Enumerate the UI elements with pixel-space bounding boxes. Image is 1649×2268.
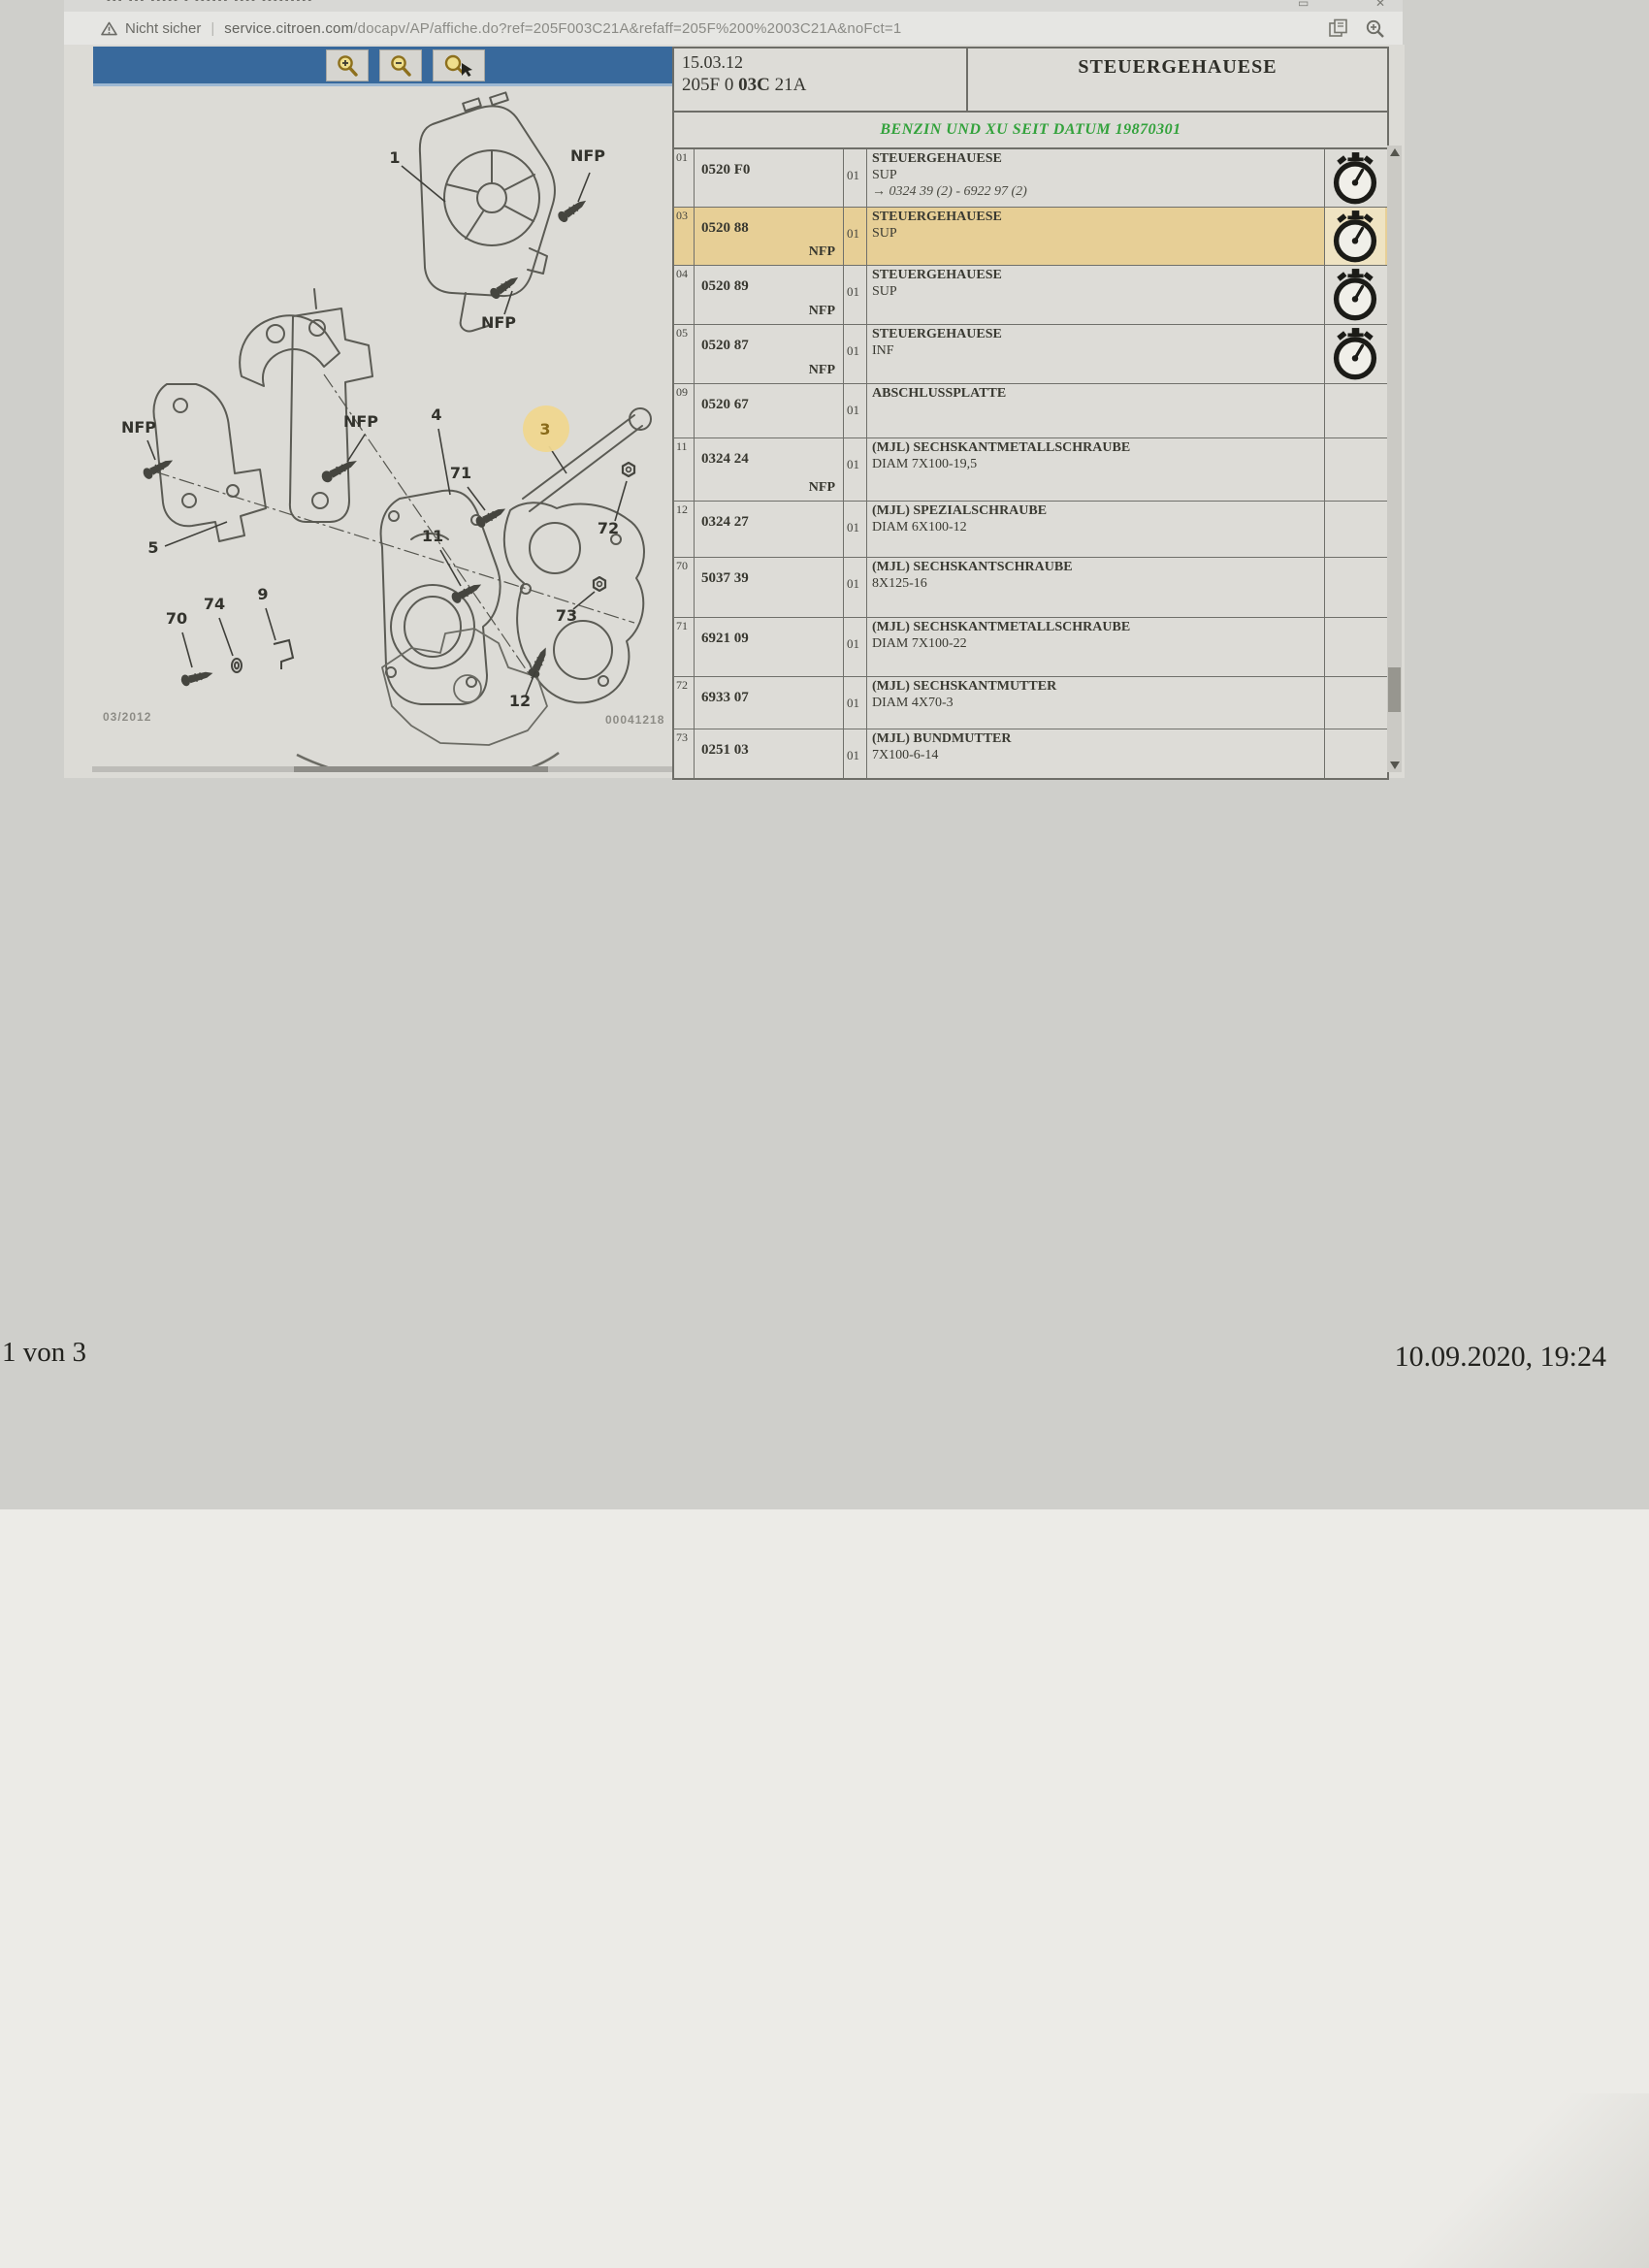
address-separator: | bbox=[210, 20, 214, 37]
part-description: STEUERGEHAUESESUP bbox=[867, 208, 1325, 265]
part-description: (MJL) SECHSKANTMUTTERDIAM 4X70-3 bbox=[867, 677, 1325, 729]
part-index: 73 bbox=[674, 729, 695, 778]
part-reference: 5037 39 bbox=[701, 570, 749, 587]
part-description: (MJL) BUNDMUTTER7X100-6-14 bbox=[867, 729, 1325, 778]
part-callout-label[interactable]: 73 bbox=[556, 606, 577, 625]
table-row[interactable]: 040520 89NFP01STEUERGEHAUESESUP bbox=[674, 266, 1387, 325]
description-line: (MJL) BUNDMUTTER bbox=[872, 730, 1324, 747]
table-row[interactable]: 030520 88NFP01STEUERGEHAUESESUP bbox=[674, 208, 1387, 266]
part-quantity: 01 bbox=[844, 266, 867, 324]
part-callout-label[interactable]: 9 bbox=[257, 585, 268, 603]
timer-cell bbox=[1325, 729, 1385, 778]
table-row[interactable]: 716921 0901(MJL) SECHSKANTMETALLSCHRAUBE… bbox=[674, 618, 1387, 677]
part-quantity: 01 bbox=[844, 384, 867, 437]
description-line: SUP bbox=[872, 283, 1324, 300]
part-callout-label[interactable]: NFP bbox=[570, 146, 605, 165]
part-callout-label[interactable]: NFP bbox=[121, 418, 156, 437]
description-line: DIAM 4X70-3 bbox=[872, 695, 1324, 711]
timer-cell bbox=[1325, 149, 1385, 207]
scroll-up-arrow-icon[interactable] bbox=[1390, 148, 1400, 156]
part-callout-label[interactable]: 71 bbox=[450, 464, 471, 482]
description-line: DIAM 6X100-12 bbox=[872, 519, 1324, 535]
zoom-out-button[interactable] bbox=[379, 49, 422, 81]
description-line: 7X100-6-14 bbox=[872, 747, 1324, 763]
magnifier-arrow-icon bbox=[442, 53, 475, 79]
part-reference: 6921 09 bbox=[701, 631, 749, 647]
part-reference-cell[interactable]: 0520 F0 bbox=[695, 149, 844, 207]
part-callout-label[interactable]: 3 bbox=[539, 420, 550, 438]
part-reference: 0520 87 bbox=[701, 338, 749, 354]
stopwatch-icon[interactable] bbox=[1331, 210, 1379, 264]
timer-cell bbox=[1325, 266, 1385, 324]
description-line: SUP bbox=[872, 225, 1324, 242]
description-line: SUP bbox=[872, 167, 1324, 183]
part-callout-label[interactable]: 72 bbox=[598, 519, 619, 537]
part-callout-label[interactable]: 1 bbox=[389, 148, 400, 167]
part-index: 70 bbox=[674, 558, 695, 617]
timer-cell bbox=[1325, 558, 1385, 617]
blank-paper-area bbox=[0, 1509, 1649, 2268]
part-description: STEUERGEHAUESEINF bbox=[867, 325, 1325, 383]
part-reference-cell[interactable]: 0324 24NFP bbox=[695, 438, 844, 501]
description-line: (MJL) SECHSKANTMUTTER bbox=[872, 678, 1324, 695]
part-reference: 0520 88 bbox=[701, 220, 749, 237]
scroll-down-arrow-icon[interactable] bbox=[1390, 761, 1400, 769]
table-header: 15.03.12 205F 0 03C 21A STEUERGEHAUESE bbox=[674, 49, 1387, 113]
part-description: ABSCHLUSSPLATTE bbox=[867, 384, 1325, 437]
part-reference: 0520 89 bbox=[701, 278, 749, 295]
table-row[interactable]: 120324 2701(MJL) SPEZIALSCHRAUBEDIAM 6X1… bbox=[674, 502, 1387, 558]
part-index: 71 bbox=[674, 618, 695, 676]
description-line: STEUERGEHAUESE bbox=[872, 326, 1324, 342]
description-line: → 0324 39 (2) - 6922 97 (2) bbox=[872, 183, 1324, 200]
part-callout-label[interactable]: 70 bbox=[166, 609, 187, 628]
part-reference-cell[interactable]: 0324 27 bbox=[695, 502, 844, 557]
table-row[interactable]: 705037 3901(MJL) SECHSKANTSCHRAUBE8X125-… bbox=[674, 558, 1387, 618]
part-description: STEUERGEHAUESESUP→ 0324 39 (2) - 6922 97… bbox=[867, 149, 1325, 207]
part-description: STEUERGEHAUESESUP bbox=[867, 266, 1325, 324]
parts-table: 15.03.12 205F 0 03C 21A STEUERGEHAUESE B… bbox=[672, 47, 1389, 780]
description-line: 8X125-16 bbox=[872, 575, 1324, 592]
browser-tab-strip: ▪▪▪ ▪▪▪ ▪▪▪▪▪ ▪ ▪▪▪▪▪▪ ▪▪▪▪ ▪▪▪▪▪▪▪▪▪ ▭ … bbox=[64, 0, 1403, 12]
nfp-flag: NFP bbox=[809, 244, 835, 260]
part-quantity: 01 bbox=[844, 149, 867, 207]
part-reference: 0520 67 bbox=[701, 397, 749, 413]
part-callout-label[interactable]: 12 bbox=[509, 692, 531, 710]
engine-variant-subtitle: BENZIN UND XU SEIT DATUM 19870301 bbox=[674, 113, 1387, 149]
part-reference-cell[interactable]: 0251 03 bbox=[695, 729, 844, 778]
zoom-select-button[interactable] bbox=[433, 49, 485, 81]
part-callout-label[interactable]: 4 bbox=[431, 405, 441, 424]
zoom-icon[interactable] bbox=[1365, 18, 1385, 39]
description-line: STEUERGEHAUESE bbox=[872, 150, 1324, 167]
part-reference-cell[interactable]: 0520 88NFP bbox=[695, 208, 844, 265]
maximize-icon[interactable]: ▭ bbox=[1298, 0, 1309, 10]
part-reference-cell[interactable]: 0520 87NFP bbox=[695, 325, 844, 383]
description-line: (MJL) SECHSKANTMETALLSCHRAUBE bbox=[872, 439, 1324, 456]
timer-cell bbox=[1325, 208, 1385, 265]
timer-cell bbox=[1325, 677, 1385, 729]
description-line: (MJL) SECHSKANTMETALLSCHRAUBE bbox=[872, 619, 1324, 635]
part-index: 04 bbox=[674, 266, 695, 324]
part-index: 03 bbox=[674, 208, 695, 265]
print-timestamp: 10.09.2020, 19:24 bbox=[1395, 1341, 1606, 1374]
part-quantity: 01 bbox=[844, 618, 867, 676]
table-row[interactable]: 050520 87NFP01STEUERGEHAUESEINF bbox=[674, 325, 1387, 384]
part-quantity: 01 bbox=[844, 325, 867, 383]
catalog-toolbar bbox=[93, 47, 673, 86]
horizontal-scrollbar[interactable] bbox=[92, 766, 672, 772]
description-line: INF bbox=[872, 342, 1324, 359]
part-index: 09 bbox=[674, 384, 695, 437]
table-row[interactable]: 010520 F001STEUERGEHAUESESUP→ 0324 39 (2… bbox=[674, 149, 1387, 208]
page-number: 1 von 3 bbox=[2, 1337, 86, 1369]
part-reference-cell[interactable]: 6921 09 bbox=[695, 618, 844, 676]
url-text[interactable]: service.citroen.com/docapv/AP/affiche.do… bbox=[224, 20, 901, 37]
part-index: 01 bbox=[674, 149, 695, 207]
part-callout-label[interactable]: 74 bbox=[204, 595, 225, 613]
part-reference: 0251 03 bbox=[701, 742, 749, 759]
table-row[interactable]: 110324 24NFP01(MJL) SECHSKANTMETALLSCHRA… bbox=[674, 438, 1387, 502]
stopwatch-icon[interactable] bbox=[1331, 268, 1379, 322]
parts-diagram: 1NFPNFPNFPNFP437111572737074912 bbox=[91, 83, 673, 768]
part-callout-label[interactable]: 11 bbox=[422, 527, 443, 545]
part-quantity: 01 bbox=[844, 502, 867, 557]
timer-cell bbox=[1325, 618, 1385, 676]
part-quantity: 01 bbox=[844, 208, 867, 265]
description-line: DIAM 7X100-22 bbox=[872, 635, 1324, 652]
horizontal-scroll-thumb[interactable] bbox=[294, 766, 548, 772]
timer-cell bbox=[1325, 502, 1385, 557]
nfp-flag: NFP bbox=[809, 304, 835, 319]
vertical-scrollbar[interactable] bbox=[1387, 146, 1402, 772]
catalog-reference: 205F 0 03C 21A bbox=[682, 75, 966, 96]
part-index: 12 bbox=[674, 502, 695, 557]
part-quantity: 01 bbox=[844, 558, 867, 617]
part-index: 72 bbox=[674, 677, 695, 729]
description-line: (MJL) SPEZIALSCHRAUBE bbox=[872, 502, 1324, 519]
zoom-in-button[interactable] bbox=[326, 49, 369, 81]
warning-triangle-icon bbox=[101, 21, 117, 36]
part-description: (MJL) SECHSKANTSCHRAUBE8X125-16 bbox=[867, 558, 1325, 617]
timer-cell bbox=[1325, 325, 1385, 383]
part-index: 11 bbox=[674, 438, 695, 501]
browser-viewport: 1NFPNFPNFPNFP437111572737074912 03/2012 … bbox=[64, 45, 1405, 778]
timer-cell bbox=[1325, 438, 1385, 501]
magnifier-plus-icon bbox=[335, 54, 360, 78]
description-line: DIAM 7X100-19,5 bbox=[872, 456, 1324, 472]
catalog-date: 15.03.12 bbox=[682, 52, 966, 73]
description-line: STEUERGEHAUESE bbox=[872, 209, 1324, 225]
description-line: STEUERGEHAUESE bbox=[872, 267, 1324, 283]
part-callout-label[interactable]: NFP bbox=[343, 412, 378, 431]
part-reference-cell[interactable]: 0520 67 bbox=[695, 384, 844, 437]
diagram-plate-number: 00041218 bbox=[605, 713, 664, 727]
address-bar[interactable]: Nicht sicher | service.citroen.com/docap… bbox=[64, 12, 1403, 46]
table-rows: 010520 F001STEUERGEHAUESESUP→ 0324 39 (2… bbox=[674, 149, 1387, 778]
page-title: STEUERGEHAUESE bbox=[968, 49, 1387, 111]
timer-cell bbox=[1325, 384, 1385, 437]
part-quantity: 01 bbox=[844, 438, 867, 501]
part-quantity: 01 bbox=[844, 729, 867, 778]
vertical-scroll-thumb[interactable] bbox=[1388, 667, 1401, 712]
pages-icon[interactable] bbox=[1328, 18, 1349, 38]
description-line: (MJL) SECHSKANTSCHRAUBE bbox=[872, 559, 1324, 575]
description-line: ABSCHLUSSPLATTE bbox=[872, 385, 1324, 402]
part-reference-cell[interactable]: 5037 39 bbox=[695, 558, 844, 617]
part-reference: 0520 F0 bbox=[701, 162, 750, 178]
part-callout-label[interactable]: 5 bbox=[147, 538, 158, 557]
magnifier-minus-icon bbox=[388, 54, 413, 78]
stopwatch-icon[interactable] bbox=[1331, 151, 1379, 206]
part-reference: 6933 07 bbox=[701, 690, 749, 706]
clipped-tab-text: ▪▪▪ ▪▪▪ ▪▪▪▪▪ ▪ ▪▪▪▪▪▪ ▪▪▪▪ ▪▪▪▪▪▪▪▪▪ bbox=[107, 0, 313, 6]
table-row[interactable]: 730251 0301(MJL) BUNDMUTTER7X100-6-14 bbox=[674, 729, 1387, 778]
part-quantity: 01 bbox=[844, 677, 867, 729]
table-row[interactable]: 090520 6701ABSCHLUSSPLATTE bbox=[674, 384, 1387, 438]
diagram-date-code: 03/2012 bbox=[103, 710, 151, 724]
part-reference: 0324 24 bbox=[701, 451, 749, 468]
stopwatch-icon[interactable] bbox=[1331, 327, 1379, 381]
nfp-flag: NFP bbox=[809, 480, 835, 496]
close-icon[interactable]: ✕ bbox=[1375, 0, 1385, 10]
security-warning-label: Nicht sicher bbox=[125, 20, 201, 37]
part-description: (MJL) SECHSKANTMETALLSCHRAUBEDIAM 7X100-… bbox=[867, 438, 1325, 501]
part-reference-cell[interactable]: 0520 89NFP bbox=[695, 266, 844, 324]
part-description: (MJL) SPEZIALSCHRAUBEDIAM 6X100-12 bbox=[867, 502, 1325, 557]
part-reference-cell[interactable]: 6933 07 bbox=[695, 677, 844, 729]
part-index: 05 bbox=[674, 325, 695, 383]
nfp-flag: NFP bbox=[809, 363, 835, 378]
part-description: (MJL) SECHSKANTMETALLSCHRAUBEDIAM 7X100-… bbox=[867, 618, 1325, 676]
scanned-page: ▪▪▪ ▪▪▪ ▪▪▪▪▪ ▪ ▪▪▪▪▪▪ ▪▪▪▪ ▪▪▪▪▪▪▪▪▪ ▭ … bbox=[0, 0, 1649, 2268]
part-callout-label[interactable]: NFP bbox=[481, 313, 516, 332]
table-row[interactable]: 726933 0701(MJL) SECHSKANTMUTTERDIAM 4X7… bbox=[674, 677, 1387, 729]
part-reference: 0324 27 bbox=[701, 514, 749, 531]
